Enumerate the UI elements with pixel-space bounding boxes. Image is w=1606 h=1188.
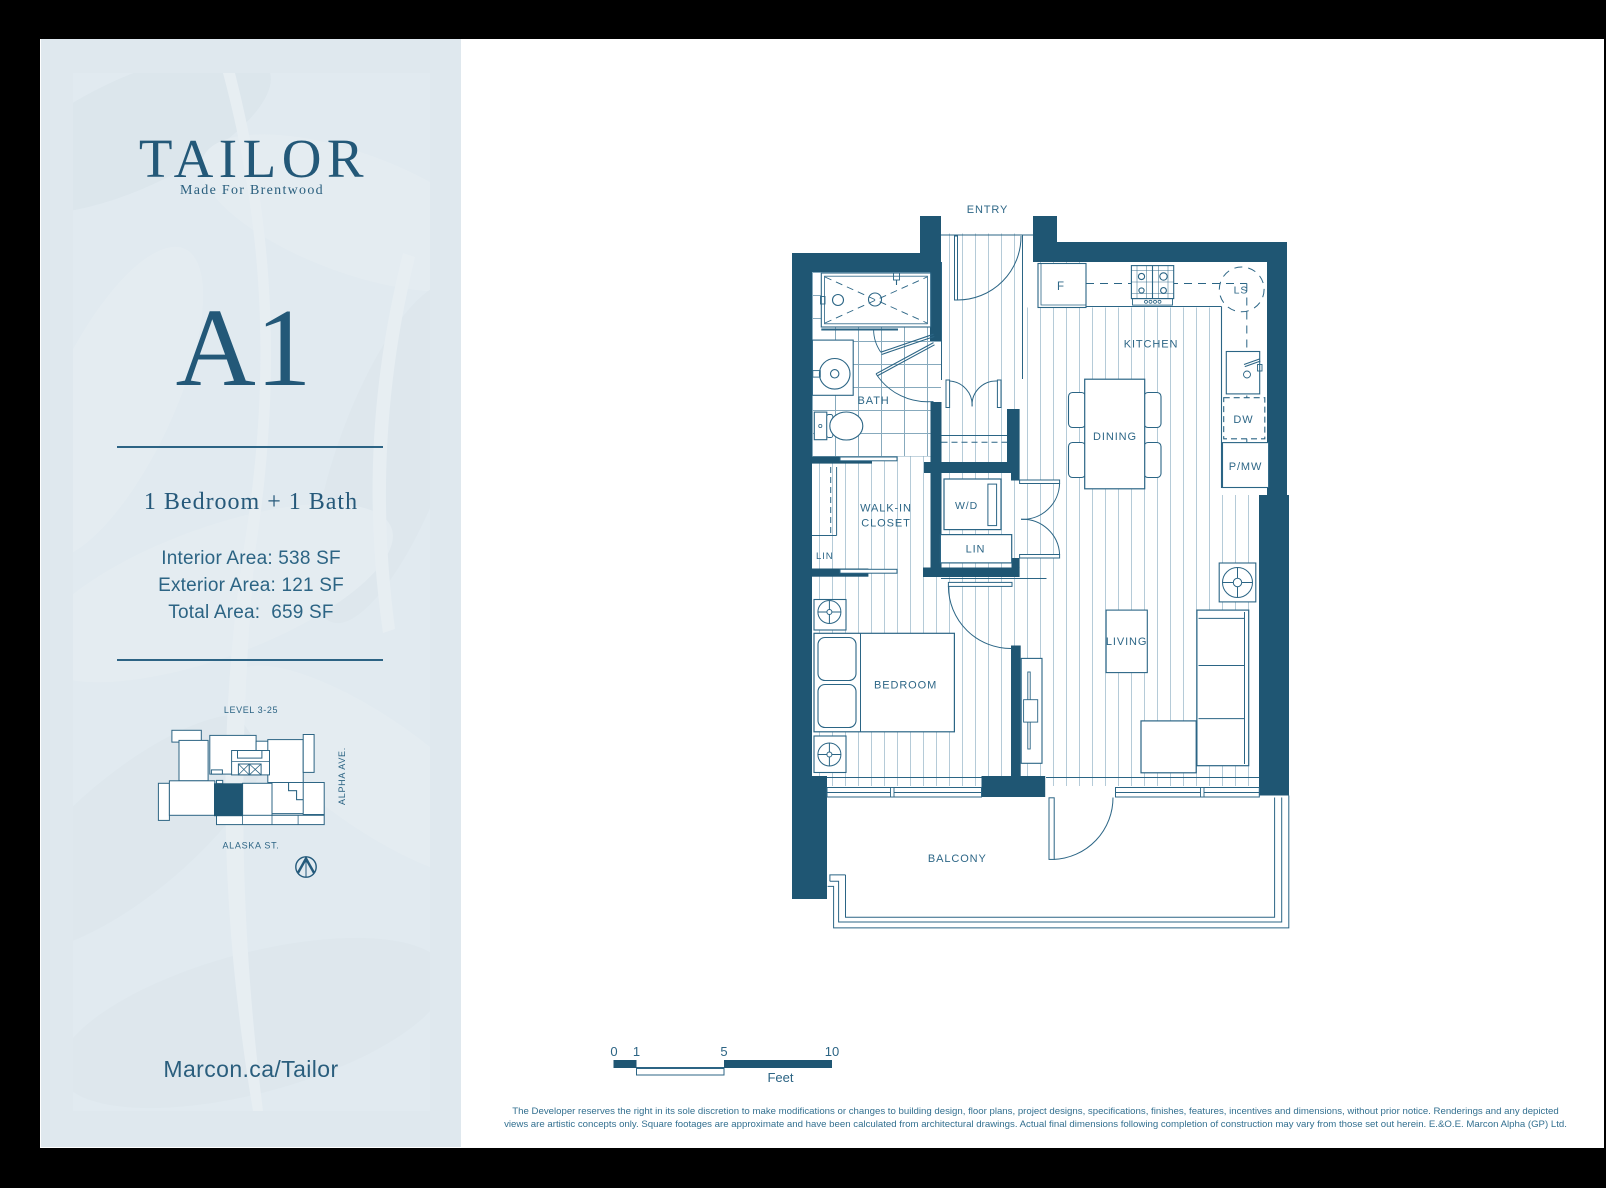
svg-text:DINING: DINING (1093, 431, 1137, 443)
svg-text:ALPHA AVE.: ALPHA AVE. (337, 747, 347, 805)
svg-text:BALCONY: BALCONY (928, 853, 987, 865)
svg-text:ALASKA ST.: ALASKA ST. (222, 841, 279, 851)
svg-text:F: F (1057, 281, 1065, 293)
svg-text:1: 1 (633, 1044, 640, 1059)
svg-text:W/D: W/D (955, 500, 978, 512)
svg-text:Feet: Feet (767, 1070, 793, 1085)
svg-text:LIN: LIN (966, 544, 986, 556)
svg-text:KITCHEN: KITCHEN (1124, 339, 1179, 351)
svg-text:LIVING: LIVING (1106, 636, 1147, 648)
svg-text:DW: DW (1233, 414, 1253, 426)
svg-text:LIN: LIN (816, 551, 833, 562)
svg-text:WALK-IN: WALK-IN (860, 503, 912, 515)
svg-text:ENTRY: ENTRY (967, 204, 1009, 216)
svg-text:BEDROOM: BEDROOM (874, 680, 937, 692)
svg-text:5: 5 (720, 1044, 727, 1059)
svg-text:P/MW: P/MW (1229, 461, 1263, 473)
svg-text:BATH: BATH (858, 395, 890, 407)
svg-text:LS: LS (1234, 285, 1249, 297)
svg-text:10: 10 (825, 1044, 839, 1059)
svg-text:0: 0 (610, 1044, 617, 1059)
svg-text:CLOSET: CLOSET (861, 518, 910, 530)
